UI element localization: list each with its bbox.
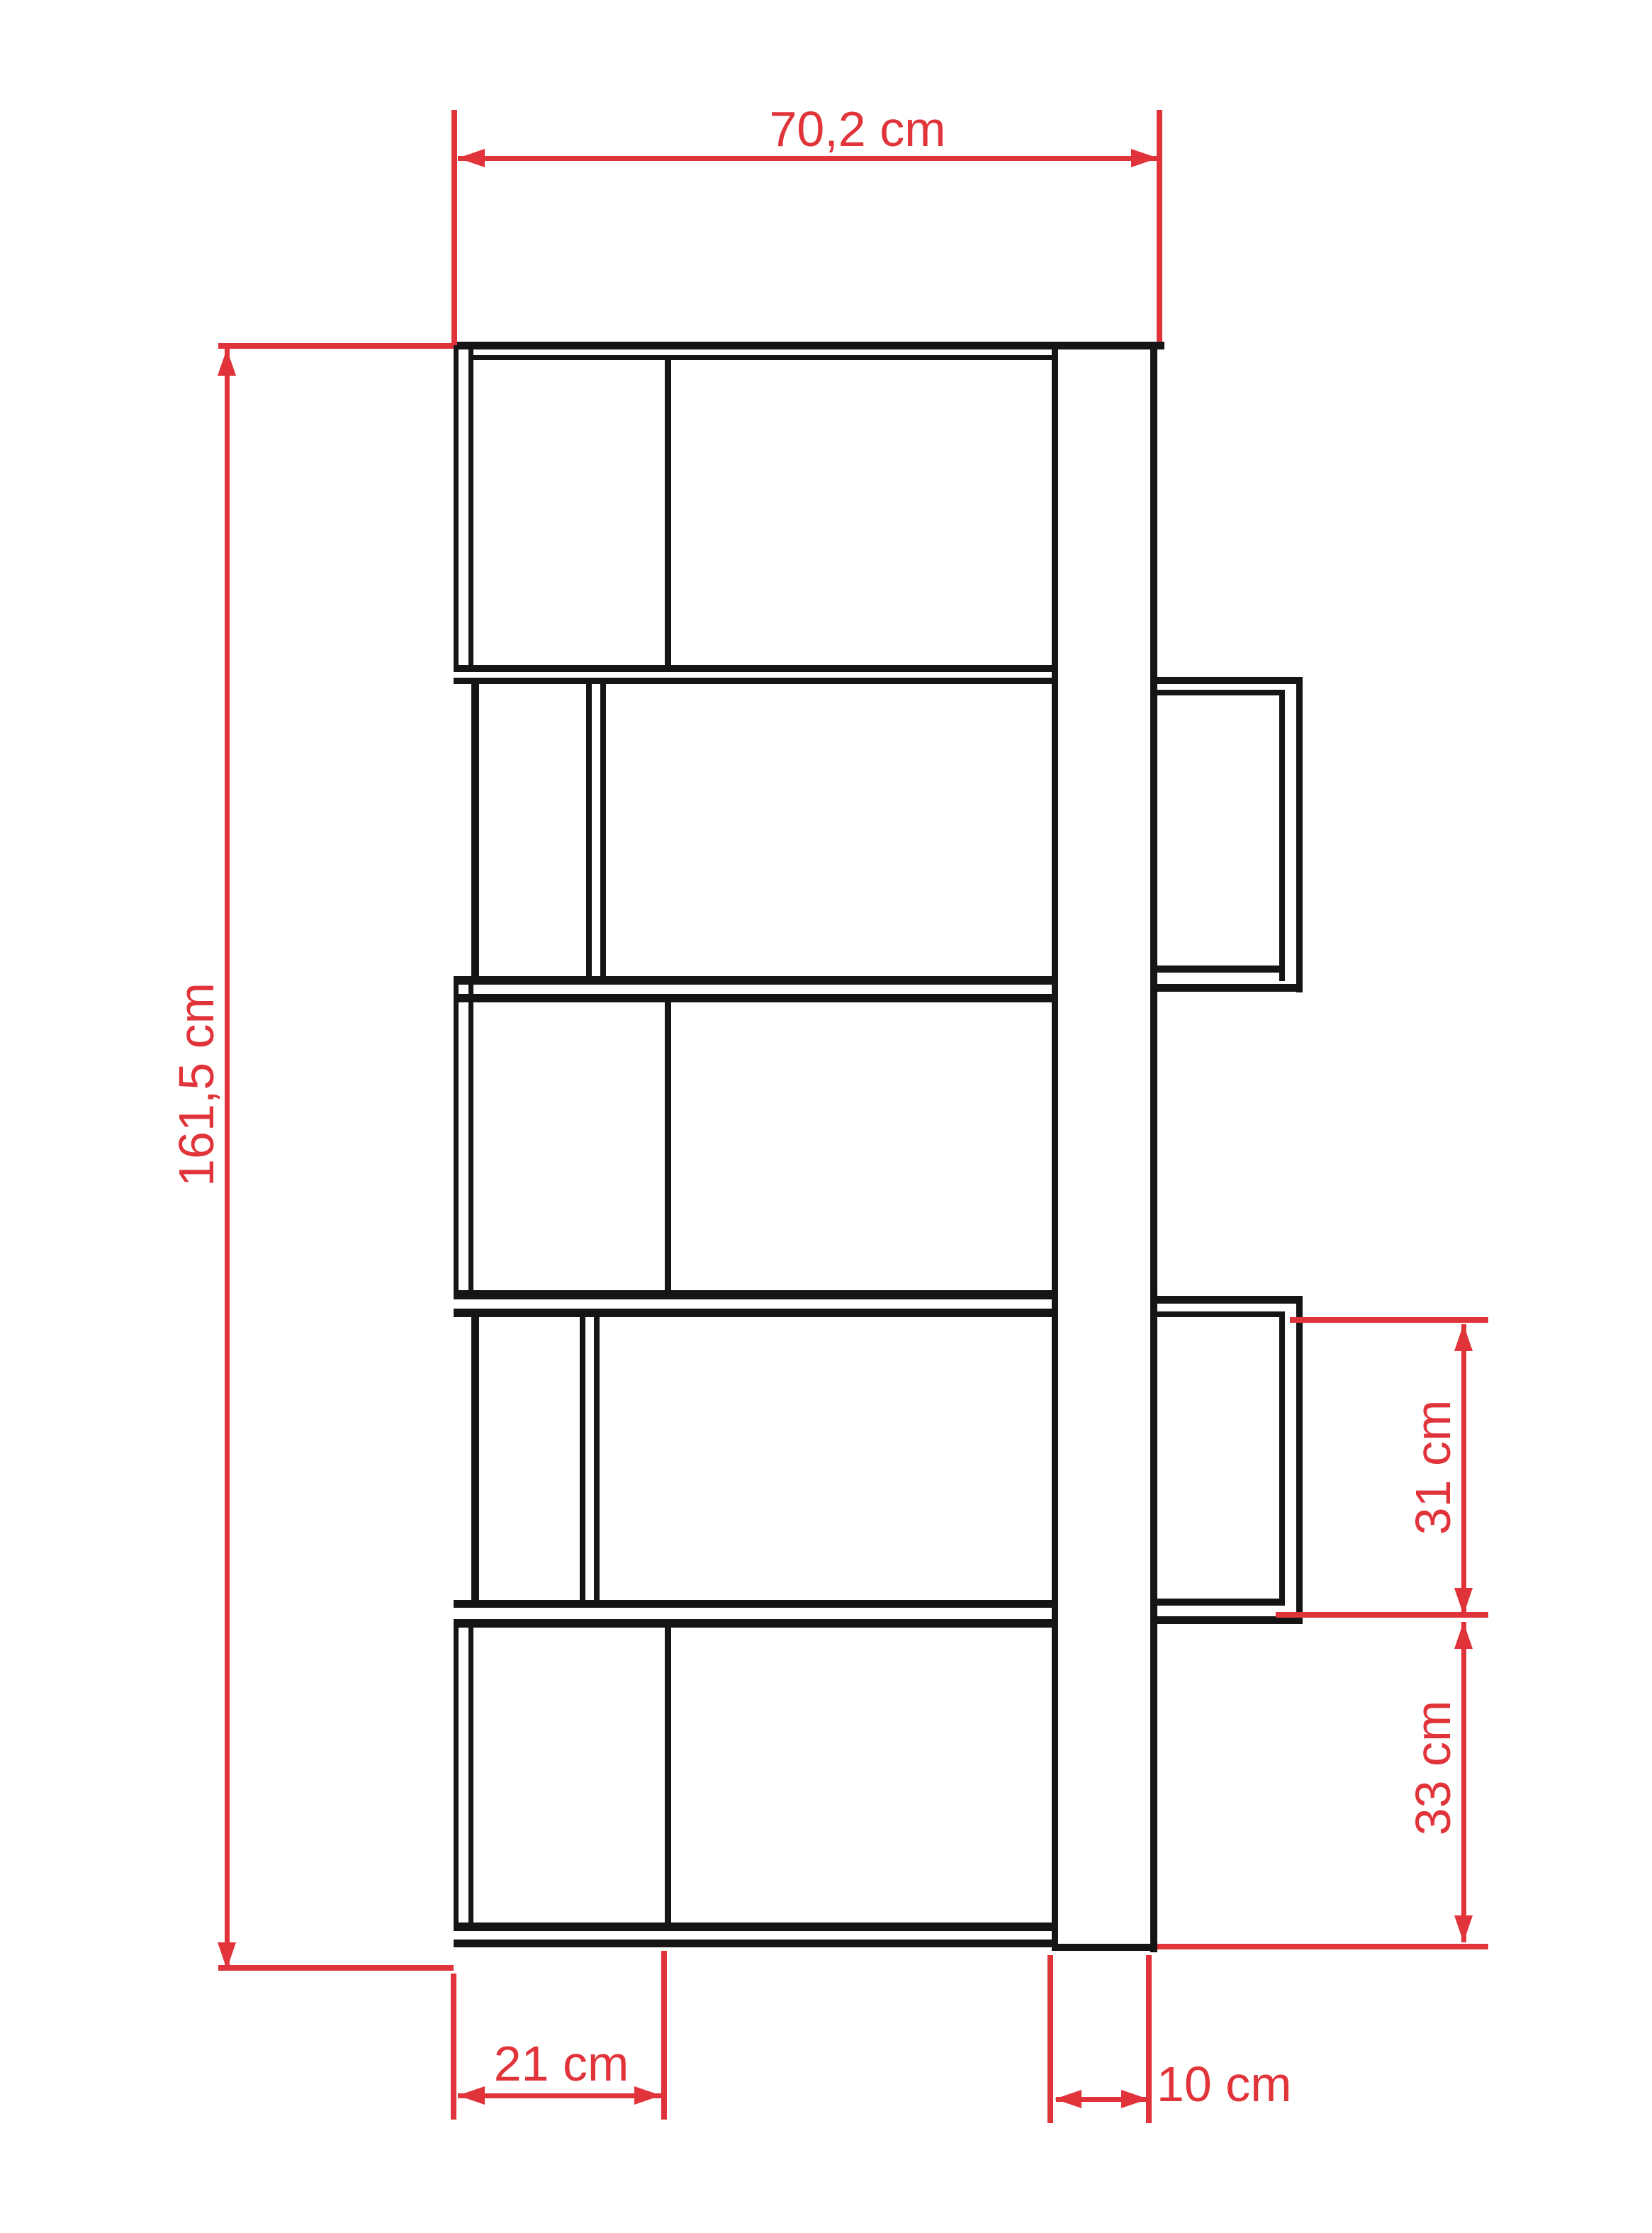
upper-right-box-right-outer-line (1296, 677, 1303, 992)
bottom-board-top-line (454, 1923, 1053, 1931)
tier5-divider (665, 1628, 671, 1923)
left-height-arrowhead-bottom-icon (218, 1942, 236, 1969)
bottom-left-dimension-line (458, 2093, 663, 2098)
dimension-label-left-height: 161,5 cm (167, 936, 226, 1233)
tier1-divider (665, 355, 671, 665)
right-lower-arrowhead-top-icon (1454, 1622, 1473, 1649)
left-height-extension-line-top (218, 343, 454, 349)
shelf-board-4-bottom-line (454, 1619, 1053, 1628)
left-height-extension-line-bottom (218, 1965, 454, 1971)
lower-right-box-top-outer-line (1157, 1296, 1303, 1304)
right-upper-arrowhead-top-icon (1454, 1324, 1473, 1351)
tier4-divider-left-line (580, 1317, 585, 1600)
tier3-left-wall-outer-line (454, 985, 459, 1290)
tier3-divider (665, 1002, 671, 1290)
lower-right-box-bottom-inner-line (1157, 1599, 1281, 1606)
upper-right-box-bottom-inner-line (1157, 966, 1281, 973)
bottom-right-arrowhead-right-icon (1121, 2090, 1148, 2108)
right-side-panel-left-edge (1052, 342, 1058, 1951)
tier4-divider-right-line (594, 1317, 600, 1600)
shelf-board-1-top-line (454, 665, 1053, 672)
right-lower-arrowhead-bottom-icon (1454, 1915, 1473, 1942)
right-side-panel-right-edge (1150, 342, 1157, 1952)
tier2-divider-right-line (600, 684, 606, 976)
right-upper-extension-line-top (1290, 1317, 1488, 1323)
tier1-left-wall-inner-line (468, 345, 473, 665)
tier5-left-wall-inner-line (468, 1628, 473, 1923)
tier5-left-wall-outer-line (454, 1628, 459, 1923)
dimension-label-right-lower: 33 cm (1403, 1676, 1463, 1860)
dimension-label-bottom-left: 21 cm (455, 2036, 668, 2091)
tier4-left-wall (471, 1317, 479, 1600)
right-upper-arrowhead-bottom-icon (1454, 1588, 1473, 1615)
bottom-right-extension-line-left (1047, 1955, 1053, 2123)
dimension-label-top-width: 70,2 cm (716, 99, 999, 159)
left-height-arrowhead-top-icon (218, 349, 236, 376)
technical-drawing-canvas: 70,2 cm 161,5 cm 31 cm 33 cm 21 cm 10 cm (0, 0, 1652, 2233)
shelf-board-2-top-line (454, 976, 1053, 985)
tier2-divider-left-line (586, 684, 592, 976)
upper-right-box-right-inner-line (1279, 690, 1285, 981)
top-width-arrowhead-right-icon (1131, 149, 1158, 167)
top-board-inner-line (469, 355, 1052, 360)
shelf-board-3-top-line (454, 1290, 1053, 1299)
shelf-board-1-bottom-line (454, 678, 1053, 684)
upper-right-box-top-outer-line (1157, 677, 1303, 684)
upper-right-box-bottom-outer-line (1157, 984, 1303, 992)
bottom-right-arrowhead-left-icon (1055, 2090, 1081, 2108)
tier1-left-wall-outer-line (454, 345, 459, 665)
top-width-extension-line-right (1157, 110, 1162, 342)
right-lower-extension-line-bottom (1157, 1944, 1488, 1949)
top-width-extension-line-left (451, 110, 457, 345)
right-side-panel-bottom-edge (1052, 1944, 1157, 1951)
tier2-left-wall (471, 684, 479, 976)
shelf-board-4-top-line (454, 1600, 1053, 1608)
dimension-label-bottom-right: 10 cm (1157, 2054, 1369, 2114)
shelf-board-2-bottom-line (454, 994, 1053, 1002)
upper-right-box-top-inner-line (1157, 690, 1281, 695)
dimension-label-right-upper: 31 cm (1403, 1375, 1463, 1560)
lower-right-box-top-inner-line (1157, 1311, 1281, 1317)
bottom-board-bottom-line (454, 1940, 1053, 1947)
lower-right-box-right-outer-line (1296, 1296, 1303, 1624)
top-width-arrowhead-left-icon (458, 149, 485, 167)
shelf-board-3-bottom-line (454, 1309, 1053, 1317)
tier3-left-wall-inner-line (468, 985, 473, 1290)
lower-right-box-right-inner-line (1279, 1311, 1285, 1606)
